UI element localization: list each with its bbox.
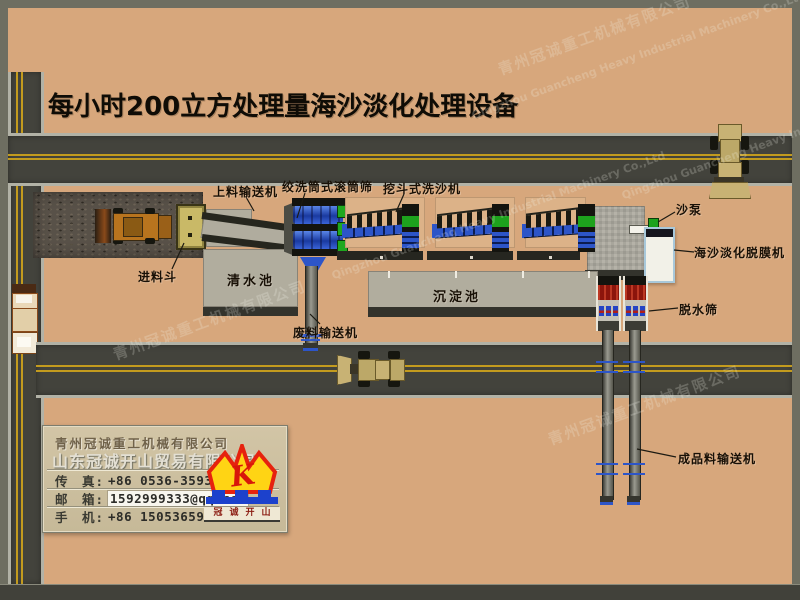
wash-drum [293,231,343,249]
label-feed-conveyor: 上料输送机 [213,183,278,200]
tower-frame [402,248,419,252]
road-yellow-line [8,154,792,156]
conveyor-support-blue [623,463,645,475]
pedestal-bar [206,497,278,504]
label-clear-water-pool: 清水池 [227,270,275,289]
tower-frame [492,204,509,216]
screen-frame [625,276,646,285]
conveyor-support-blue [596,463,618,475]
product-conveyor-tip [600,496,613,505]
defilming-machine [644,227,675,283]
label-bucket-washer: 挖斗式洗沙机 [383,180,461,197]
pedestal-block [235,490,248,497]
middle-road [36,342,792,398]
label-waste-conveyor: 废料输送机 [293,324,358,341]
screen-spring [606,306,611,316]
tower-screen-blue [492,232,509,248]
label-drum-screen: 绞洗筒式滚筒筛 [282,178,373,195]
pedestal-block [258,490,271,497]
crown-logo-icon: K [204,444,280,494]
label-product-conveyor: 成品料输送机 [678,450,756,467]
bucket-washer-unit [523,196,613,256]
top-road [8,133,792,186]
truck-body [12,308,38,332]
truck-window [16,295,32,303]
road-yellow-line [36,370,792,372]
loader-wheel [741,136,749,150]
screen-spring [633,306,638,316]
tower-frame [578,204,595,216]
screen-spring [613,306,618,316]
hopper-bolt [188,233,192,237]
logo-caption: 冠诚开山 [204,507,280,522]
loader-bucket [709,182,751,199]
washer-tower [578,204,595,252]
logo-pedestal [204,490,280,506]
truck-on-left-road [11,284,37,352]
loader-cab [123,217,143,237]
wheel-loader-middle-road [337,351,405,388]
loader-wheel [741,160,749,174]
loader-wheel [710,136,718,150]
hopper-bolt [188,216,192,220]
truck-roof [12,284,36,293]
fax-label: 传 真: [55,471,104,490]
loader-wheel [710,160,718,174]
wash-drum [293,206,343,224]
tower-motor-green [578,216,595,227]
company-logo: K 冠诚开山 [204,444,280,522]
screen-spring [640,306,645,316]
tower-motor-green [402,216,419,227]
pool-tick [455,271,457,278]
screen-body [625,300,646,321]
label-defilming-machine: 海沙淡化脱膜机 [694,244,785,261]
loader-arm [714,177,744,182]
dewatering-screen [623,276,648,331]
loader-wheel [145,208,155,214]
bucket-washer-unit [345,196,435,256]
tower-frame [492,248,509,252]
frame-bottom [0,584,800,600]
pool-tick [388,271,390,278]
conveyor-road-bridge [623,361,645,373]
trough-drain [549,256,552,259]
loader-rear [390,359,405,381]
screen-red-deck [598,285,619,300]
mobile-label: 手 机: [55,507,104,526]
sedimentation-pool-edge [368,307,598,317]
screen-frame [598,276,619,285]
label-sedimentation-pool: 沉淀池 [433,286,481,305]
screen-spring [626,306,631,316]
screen-spring [599,306,604,316]
tower-screen-blue [402,232,419,248]
trough-drain [470,256,473,259]
road-yellow-line [8,158,792,160]
equipment-layout-scene: 上料输送机 绞洗筒式滚筒筛 挖斗式洗沙机 沙泵 海沙淡化脱膜机 脱水筛 进料斗 … [0,0,800,600]
loader-rear [158,215,172,239]
mobile-row: 手 机: +86 15053659999 [55,508,228,524]
pool-tick [522,271,524,278]
label-sand-pump: 沙泵 [676,201,702,218]
tower-motor-green [492,216,509,227]
screen-body [598,300,619,321]
washer-tower [402,204,419,252]
loader-bucket [95,209,111,243]
label-feed-hopper: 进料斗 [138,268,177,285]
truck-trailer-top [17,337,31,347]
defilming-machine-top [646,229,673,237]
loader-wheel [358,351,370,359]
pedestal-block [212,490,225,497]
tower-screen-blue [578,232,595,248]
product-conveyor-tip [627,496,640,505]
bucket-washer-unit [435,196,525,256]
wheel-loader-top-road [708,122,752,198]
pool-tick [588,271,590,278]
email-label: 邮 箱: [55,489,104,508]
tower-frame [578,248,595,252]
label-dewatering-screen: 脱水筛 [679,301,718,318]
washer-tower [492,204,509,252]
sedimentation-pool [368,271,598,308]
tower-frame [402,204,419,216]
screen-red-deck [625,285,646,300]
conveyor-road-bridge [596,361,618,373]
loader-wheel [388,351,400,359]
clear-water-pool-edge [203,307,298,316]
road-yellow-line [36,365,792,367]
page-title: 每小时200立方处理量海沙淡化处理设备 [48,86,518,123]
waste-conveyor-tip [303,343,318,351]
loader-wheel [145,238,155,244]
orange-wheel-loader [95,207,173,245]
dewatering-screen [596,276,621,331]
trough-drain [380,256,383,259]
loader-cab [375,360,390,380]
